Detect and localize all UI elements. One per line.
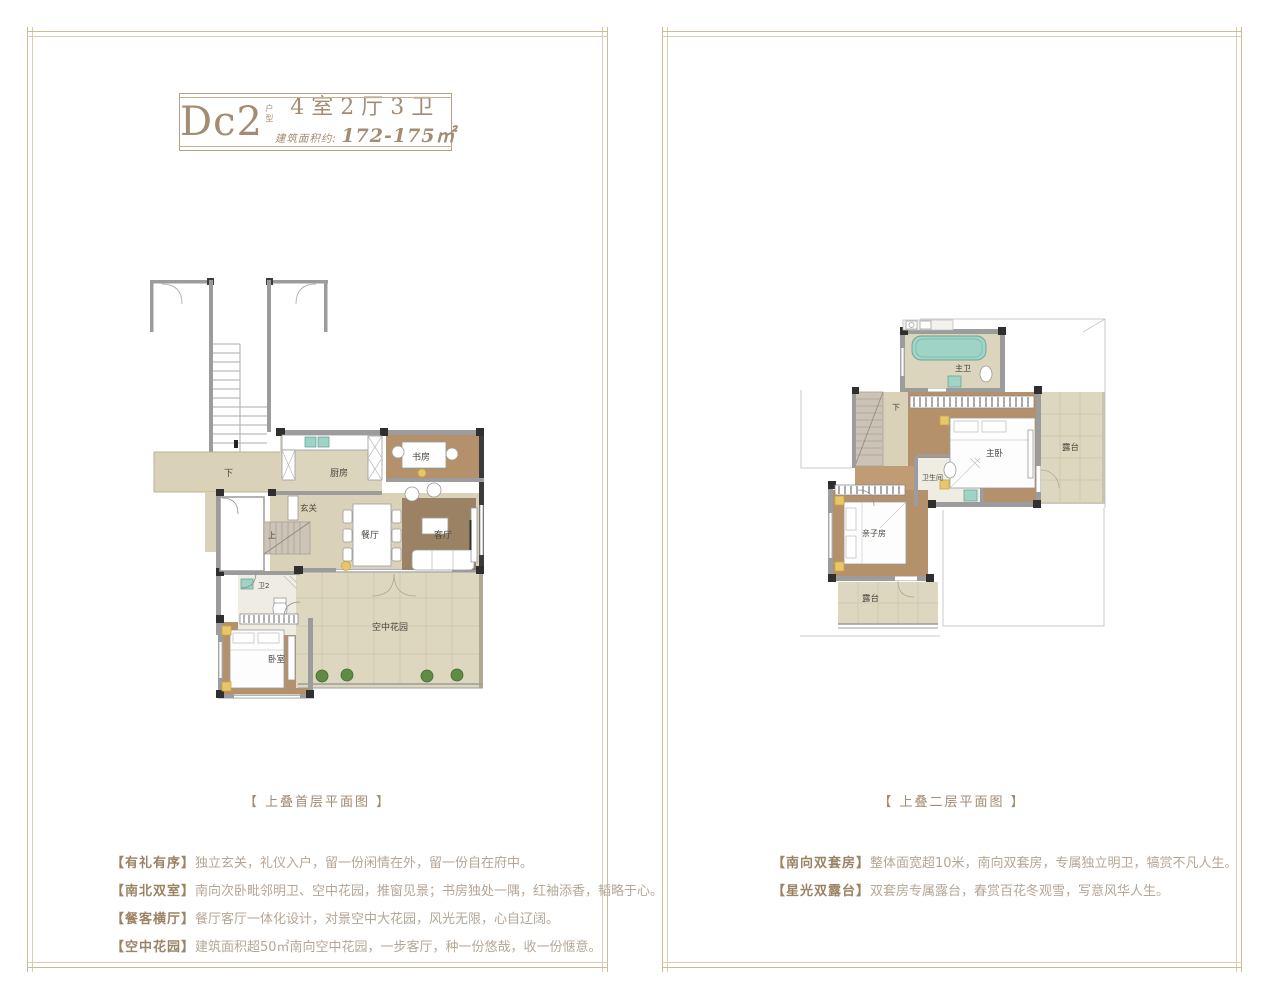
feature-row: 【空中花园】建筑面积超50㎡南向空中花园，一步客厅，种一份悠哉，收一份惬意。 [111, 934, 663, 962]
label-terrace-bottom: 露台 [862, 593, 879, 604]
pillow-icon [846, 536, 856, 558]
nightstand-icon [222, 626, 231, 635]
closet [240, 614, 298, 624]
plan-title-block: Dc2 户型 4室2厅3卫 建筑面积约: 172-175㎡ [179, 93, 452, 151]
room-count: 4室2厅3卫 [290, 96, 440, 120]
wardrobe-icon [910, 396, 1034, 408]
label-master-bath: 主卫 [955, 363, 971, 373]
label-bath2: 卫2 [258, 582, 269, 590]
chair-icon [446, 448, 458, 460]
tv-cabinet-icon [471, 508, 477, 562]
panel-first-floor: Dc2 户型 4室2厅3卫 建筑面积约: 172-175㎡ [27, 27, 608, 972]
armchair-icon [405, 487, 419, 501]
plan-code-cell: Dc2 户型 [180, 94, 275, 150]
frame-line [27, 36, 608, 37]
feature-list: 【南向双套房】整体面宽超10米，南向双套房，专属独立明卫，犒赏不凡人生。 【星光… [772, 850, 1238, 906]
label-foyer: 玄关 [300, 503, 318, 514]
bathtub-icon [912, 336, 986, 360]
sink-icon [948, 376, 961, 387]
label-study: 书房 [412, 451, 430, 463]
panel-second-floor: 下 [662, 27, 1242, 972]
frame-line [602, 27, 603, 972]
feature-row: 【南向双套房】整体面宽超10米，南向双套房，专属独立明卫，犒赏不凡人生。 [772, 850, 1238, 878]
nightstand-icon [835, 496, 844, 505]
frame-line [27, 967, 608, 968]
toilet-icon [980, 366, 992, 382]
nightstand-icon [835, 562, 844, 571]
lamp-icon [342, 562, 351, 571]
frame-line [662, 27, 663, 972]
tv-cabinet-icon [1028, 430, 1033, 478]
label-up: 上 [268, 531, 276, 540]
frame-line [1241, 27, 1242, 972]
plan-caption: 【 上叠首层平面图 】 [27, 791, 608, 810]
dresser-icon [288, 636, 295, 680]
pillow-icon [846, 508, 856, 530]
frame-line [662, 962, 1242, 963]
label-kids-room: 亲子房 [862, 528, 886, 538]
pantry-cabinet [368, 436, 382, 480]
plan-code: Dc2 [180, 102, 263, 142]
plan-summary-cell: 4室2厅3卫 建筑面积约: 172-175㎡ [275, 94, 456, 150]
label-master-bed: 主卧 [986, 448, 1004, 459]
label-terrace-right: 露台 [1062, 442, 1079, 453]
label-living: 客厅 [434, 529, 452, 541]
frame-line [662, 31, 1242, 32]
pillow-icon [954, 421, 978, 432]
frame-line [667, 27, 668, 972]
toilet-icon [944, 462, 956, 478]
frame-line [27, 31, 608, 32]
frame-line [607, 27, 608, 972]
first-floor-plan: 下 [150, 270, 490, 700]
sofa-icon [412, 550, 474, 570]
frame-line [32, 27, 33, 972]
pillow-icon [982, 421, 1006, 432]
frame-line [662, 36, 1242, 37]
storage-room [220, 497, 264, 571]
washer-icon [920, 321, 931, 329]
feature-row: 【有礼有序】独立玄关，礼仪入户，留一份闲情在外，留一份自在府中。 [111, 850, 663, 878]
dining-room: 餐厅 [342, 504, 402, 571]
laundry-nook [903, 320, 953, 330]
label-kitchen: 厨房 [330, 467, 348, 479]
armchair-icon [427, 483, 441, 497]
label-sky-garden: 空中花园 [372, 621, 408, 633]
label-bedroom: 卧室 [268, 654, 286, 665]
feature-row: 【星光双露台】双套房专属露台，春赏百花冬观雪，写意风华人生。 [772, 878, 1238, 906]
plan-caption: 【 上叠二层平面图 】 [662, 791, 1242, 810]
interior-stair: 上 [264, 522, 310, 554]
floor-area: 建筑面积约: 172-175㎡ [275, 121, 456, 148]
pillow-icon [233, 633, 254, 643]
floor-area-value: 172-175㎡ [341, 125, 455, 147]
chair-icon [392, 446, 404, 458]
sink-icon [318, 437, 329, 447]
tv-icon [470, 520, 472, 550]
pillow-icon [258, 633, 279, 643]
sink-icon [305, 437, 316, 447]
second-floor-plan: 下 [800, 318, 1110, 648]
lamp-icon [418, 469, 426, 477]
frame-line [662, 967, 1242, 968]
nightstand-icon [940, 416, 949, 425]
feature-list: 【有礼有序】独立玄关，礼仪入户，留一份闲情在外，留一份自在府中。 【南北双室】南… [111, 850, 663, 962]
nightstand-icon [222, 682, 231, 691]
label-bath: 卫生间 [922, 473, 943, 482]
label-down: 下 [892, 403, 900, 412]
feature-row: 【餐客横厅】餐厅客厅一体化设计，对景空中大花园，风光无限，心自辽阔。 [111, 906, 663, 934]
feature-row: 【南北双室】南向次卧毗邻明卫、空中花园，推窗见景；书房独处一隅，红袖添香，韬略于… [111, 878, 663, 906]
frame-line [27, 962, 608, 963]
plan-code-suffix: 户型 [264, 104, 275, 124]
outdoor-stair [150, 278, 328, 452]
shoe-cabinet-icon [288, 496, 298, 520]
label-down: 下 [224, 469, 233, 479]
label-dining: 餐厅 [361, 529, 379, 541]
sink-icon [964, 490, 977, 501]
frame-line [1236, 27, 1237, 972]
frame-line [27, 27, 28, 972]
floor-area-label: 建筑面积约: [275, 133, 341, 145]
